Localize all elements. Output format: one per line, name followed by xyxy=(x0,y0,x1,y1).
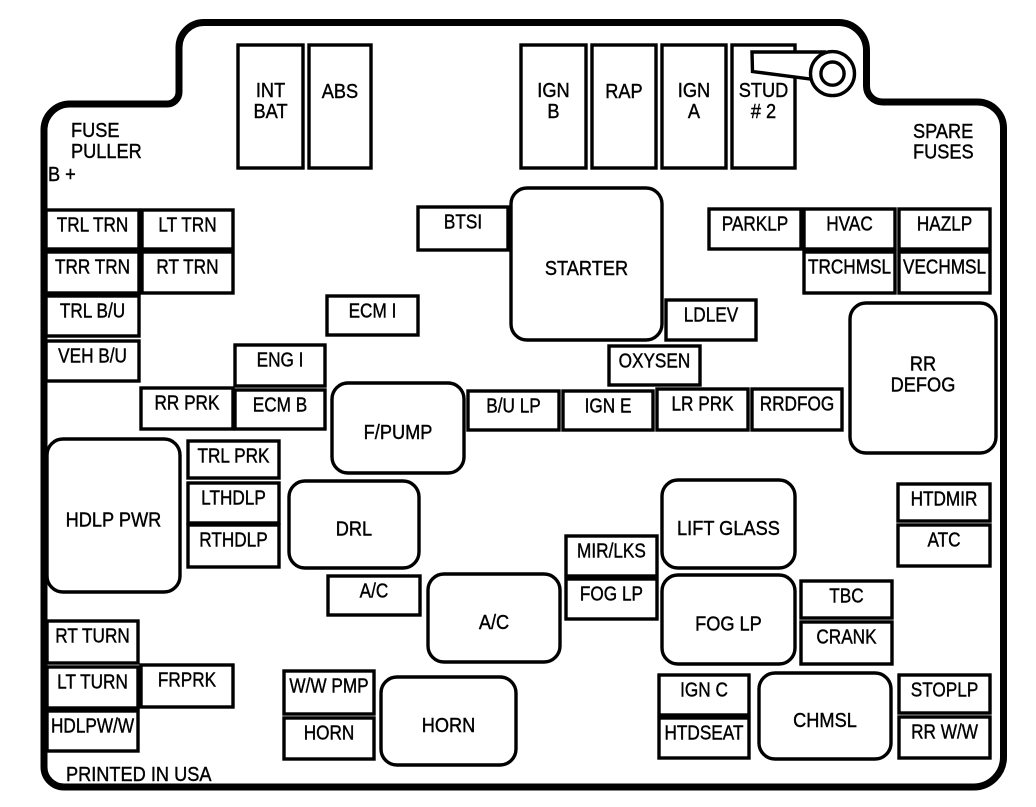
svg-text:ATC: ATC xyxy=(927,528,960,551)
svg-text:B +: B + xyxy=(48,164,76,186)
svg-text:RR PRK: RR PRK xyxy=(154,391,219,414)
svg-text:ECM B: ECM B xyxy=(253,393,307,416)
svg-text:TRL B/U: TRL B/U xyxy=(60,299,125,322)
svg-text:BAT: BAT xyxy=(254,101,288,123)
svg-text:FUSES: FUSES xyxy=(913,142,974,164)
svg-text:RAP: RAP xyxy=(605,81,642,103)
svg-text:CRANK: CRANK xyxy=(816,625,877,648)
svg-text:STUD: STUD xyxy=(739,80,789,102)
svg-text:RTHDLP: RTHDLP xyxy=(199,528,267,551)
svg-text:FOG LP: FOG LP xyxy=(695,614,762,636)
svg-text:INT: INT xyxy=(256,80,286,102)
svg-text:SPARE: SPARE xyxy=(913,121,973,143)
svg-text:HVAC: HVAC xyxy=(826,212,872,235)
svg-text:PARKLP: PARKLP xyxy=(722,212,789,235)
svg-text:RT TRN: RT TRN xyxy=(156,255,218,278)
svg-text:FOG LP: FOG LP xyxy=(580,582,643,605)
svg-text:CHMSL: CHMSL xyxy=(793,710,857,732)
svg-text:IGN C: IGN C xyxy=(680,678,728,701)
svg-text:PRINTED IN USA: PRINTED IN USA xyxy=(66,764,212,786)
svg-text:HDLPW/W: HDLPW/W xyxy=(51,714,134,737)
svg-text:VECHMSL: VECHMSL xyxy=(903,255,986,278)
svg-text:FUSE: FUSE xyxy=(71,120,120,142)
svg-text:HTDMIR: HTDMIR xyxy=(911,487,978,510)
svg-text:A: A xyxy=(688,101,700,123)
svg-text:RRDFOG: RRDFOG xyxy=(760,392,834,415)
svg-text:LT TURN: LT TURN xyxy=(57,670,128,693)
svg-text:TRCHMSL: TRCHMSL xyxy=(808,255,891,278)
svg-text:TRL PRK: TRL PRK xyxy=(198,444,270,467)
svg-text:LIFT GLASS: LIFT GLASS xyxy=(677,518,780,540)
svg-text:B: B xyxy=(547,101,559,123)
svg-text:HDLP PWR: HDLP PWR xyxy=(66,510,162,532)
svg-text:IGN: IGN xyxy=(678,80,710,102)
svg-text:F/PUMP: F/PUMP xyxy=(364,422,433,444)
svg-text:TRL TRN: TRL TRN xyxy=(57,213,129,236)
svg-text:ECM I: ECM I xyxy=(349,299,397,322)
svg-text:STOPLP: STOPLP xyxy=(911,678,979,701)
svg-text:DEFOG: DEFOG xyxy=(891,375,956,397)
svg-text:HAZLP: HAZLP xyxy=(917,212,972,235)
svg-text:MIR/LKS: MIR/LKS xyxy=(577,539,646,562)
svg-text:PULLER: PULLER xyxy=(71,141,142,163)
svg-text:DRL: DRL xyxy=(336,519,372,541)
svg-text:RR W/W: RR W/W xyxy=(911,720,978,743)
svg-text:HORN: HORN xyxy=(304,721,355,744)
svg-text:# 2: # 2 xyxy=(751,101,776,123)
svg-text:HTDSEAT: HTDSEAT xyxy=(665,721,744,744)
svg-text:RR: RR xyxy=(910,354,936,376)
svg-text:A/C: A/C xyxy=(360,579,389,602)
svg-text:LR PRK: LR PRK xyxy=(671,392,734,415)
svg-text:LDLEV: LDLEV xyxy=(684,303,739,326)
svg-text:ENG I: ENG I xyxy=(257,348,304,371)
svg-text:VEH B/U: VEH B/U xyxy=(58,344,127,367)
svg-text:B/U LP: B/U LP xyxy=(486,394,540,417)
svg-text:TBC: TBC xyxy=(829,584,863,607)
svg-text:FRPRK: FRPRK xyxy=(158,668,217,691)
svg-text:STARTER: STARTER xyxy=(545,258,628,280)
svg-text:LT TRN: LT TRN xyxy=(158,213,216,236)
svg-text:TRR TRN: TRR TRN xyxy=(55,255,130,278)
svg-text:IGN: IGN xyxy=(537,80,569,102)
svg-text:BTSI: BTSI xyxy=(444,210,482,233)
svg-text:A/C: A/C xyxy=(479,612,510,634)
svg-text:ABS: ABS xyxy=(322,81,358,103)
svg-text:OXYSEN: OXYSEN xyxy=(619,349,691,372)
svg-text:RT TURN: RT TURN xyxy=(55,624,130,647)
svg-text:HORN: HORN xyxy=(422,715,476,737)
svg-text:LTHDLP: LTHDLP xyxy=(201,486,266,509)
svg-text:IGN E: IGN E xyxy=(585,394,632,417)
svg-text:W/W PMP: W/W PMP xyxy=(289,674,368,697)
